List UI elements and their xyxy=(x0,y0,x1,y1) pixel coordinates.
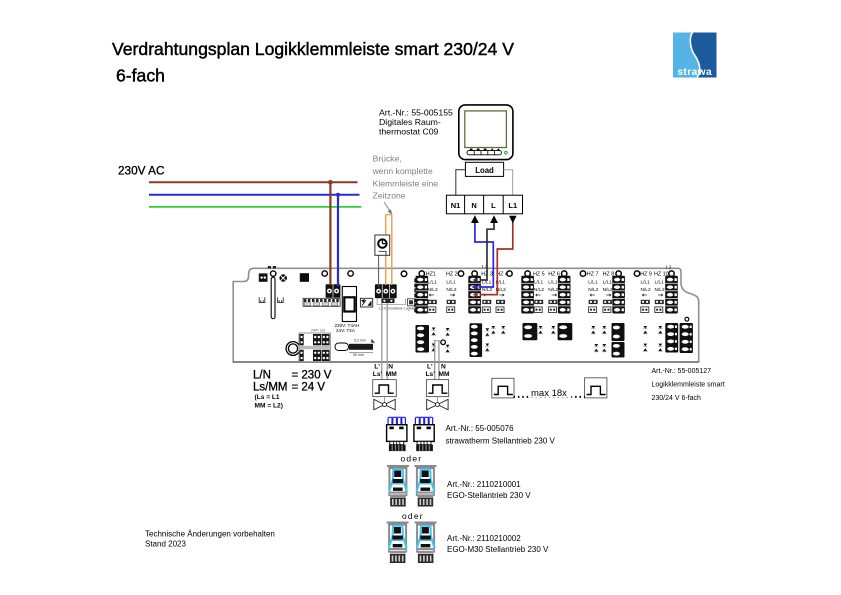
svg-text:HZ 8: HZ 8 xyxy=(603,271,615,277)
svg-text:90 mm: 90 mm xyxy=(353,353,364,357)
svg-text:Art.-Nr.: 2110210001: Art.-Nr.: 2110210001 xyxy=(447,480,521,489)
svg-text:L': L' xyxy=(427,364,433,371)
svg-text:N/L2: N/L2 xyxy=(655,287,665,293)
svg-text:wenn komplette: wenn komplette xyxy=(372,166,433,176)
svg-text:= 230 V: = 230 V xyxy=(292,370,332,382)
svg-text:230V AC: 230V AC xyxy=(118,164,165,178)
svg-text:5,3 mm: 5,3 mm xyxy=(354,339,366,343)
svg-text:HZ 6: HZ 6 xyxy=(548,271,560,277)
svg-text:L1: L1 xyxy=(508,201,517,210)
svg-text:L/L1: L/L1 xyxy=(428,279,438,285)
svg-text:L/L1: L/L1 xyxy=(548,279,558,285)
svg-text:N/L2: N/L2 xyxy=(446,287,456,293)
svg-text:Logikklemmleiste smart: Logikklemmleiste smart xyxy=(652,382,725,389)
svg-text:Klemmleiste eine: Klemmleiste eine xyxy=(373,178,439,188)
svg-text:= 24 V: = 24 V xyxy=(292,382,326,394)
svg-text:N/L2: N/L2 xyxy=(603,287,613,293)
svg-text:N/L2: N/L2 xyxy=(588,287,598,293)
svg-text:N: N xyxy=(388,364,393,371)
svg-text:Load: Load xyxy=(475,166,494,175)
svg-text:thermostat C09: thermostat C09 xyxy=(379,127,439,137)
svg-text:6-fach: 6-fach xyxy=(116,66,165,86)
svg-text:Brücke,: Brücke, xyxy=(373,153,402,163)
svg-text:Art.-Nr.: 55-005127: Art.-Nr.: 55-005127 xyxy=(652,368,712,375)
svg-text:strawa: strawa xyxy=(677,67,712,78)
svg-text:1 2: 1 2 xyxy=(666,264,672,269)
svg-text:N/L2: N/L2 xyxy=(534,287,544,293)
svg-text:oder: oder xyxy=(401,454,423,464)
svg-text:HZ1: HZ1 xyxy=(426,271,436,277)
svg-text:N/L2: N/L2 xyxy=(428,287,438,293)
svg-text:L: L xyxy=(491,201,496,210)
svg-text:HZ 5: HZ 5 xyxy=(533,271,545,277)
svg-text:MM: MM xyxy=(386,371,397,378)
svg-text:HZ 10: HZ 10 xyxy=(654,271,669,277)
svg-text:L': L' xyxy=(374,364,380,371)
svg-text:Digitales Raum-: Digitales Raum- xyxy=(379,117,441,127)
svg-text:L/L1: L/L1 xyxy=(603,279,613,285)
svg-text:24V= out: 24V= out xyxy=(311,329,325,333)
svg-text:strawatherm Stellantrieb 230 V: strawatherm Stellantrieb 230 V xyxy=(446,437,556,446)
svg-text:Art.-Nr.: 2110210002: Art.-Nr.: 2110210002 xyxy=(447,534,521,543)
svg-text:N: N xyxy=(441,364,446,371)
svg-text:MM = L2): MM = L2) xyxy=(255,402,283,409)
svg-text:N/L2: N/L2 xyxy=(641,287,651,293)
svg-text:L/L1: L/L1 xyxy=(446,279,456,285)
svg-text:N: N xyxy=(471,201,476,210)
svg-text:24V: T2A: 24V: T2A xyxy=(336,328,356,333)
svg-text:Ls/MM: Ls/MM xyxy=(253,382,288,394)
svg-text:L/N: L/N xyxy=(253,370,271,382)
svg-text:Ls': Ls' xyxy=(426,371,436,378)
svg-text:MM: MM xyxy=(439,371,450,378)
svg-text:Technische Änderungen vorbehal: Technische Änderungen vorbehalten xyxy=(145,530,275,539)
svg-text:EGO-M30 Stellantrieb 230 V: EGO-M30 Stellantrieb 230 V xyxy=(447,545,549,554)
svg-text:L/L1: L/L1 xyxy=(588,279,598,285)
svg-text:L/L1: L/L1 xyxy=(641,279,651,285)
svg-text:EGO-Stellantrieb 230 V: EGO-Stellantrieb 230 V xyxy=(447,491,531,500)
svg-text:(Ls = L1: (Ls = L1 xyxy=(255,394,280,401)
svg-text:HZ 9: HZ 9 xyxy=(640,271,652,277)
svg-text:max 18x: max 18x xyxy=(531,388,567,399)
svg-text:Art.-Nr.: 55-005155: Art.-Nr.: 55-005155 xyxy=(379,108,453,118)
svg-text:L/L1: L/L1 xyxy=(655,279,665,285)
svg-text:N/L2: N/L2 xyxy=(548,287,558,293)
svg-text:Art.-Nr.: 55-005076: Art.-Nr.: 55-005076 xyxy=(446,424,515,433)
svg-text:oder: oder xyxy=(402,511,424,521)
svg-text:Stand 2023: Stand 2023 xyxy=(145,540,186,549)
svg-text:HZ 7: HZ 7 xyxy=(587,271,599,277)
svg-text:Verdrahtungsplan Logikklemmlei: Verdrahtungsplan Logikklemmleiste smart … xyxy=(112,39,514,59)
svg-text:HZ 2: HZ 2 xyxy=(446,271,458,277)
svg-text:L/L1: L/L1 xyxy=(534,279,544,285)
svg-text:Zeitzone: Zeitzone xyxy=(373,190,406,200)
svg-text:N1: N1 xyxy=(451,201,461,210)
svg-text:Ls': Ls' xyxy=(373,371,383,378)
svg-text:230/24 V 6-fach: 230/24 V 6-fach xyxy=(652,395,702,402)
